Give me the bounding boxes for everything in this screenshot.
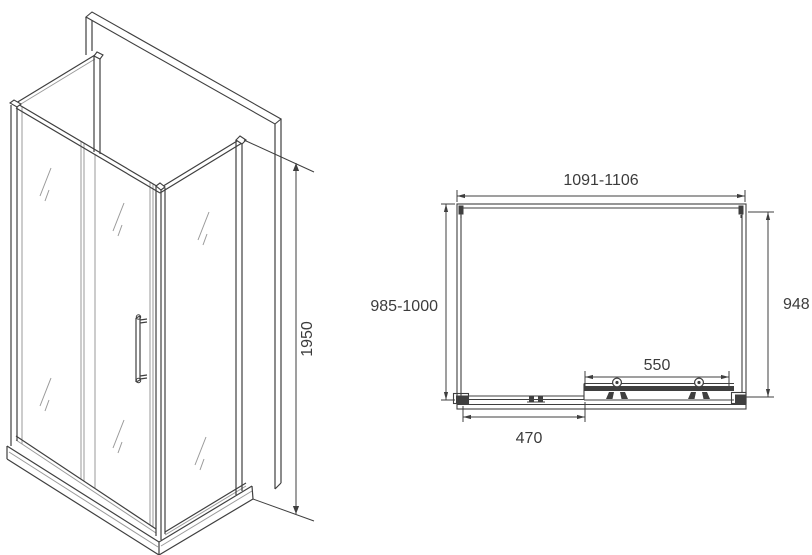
bottom-left-bracket [456, 396, 468, 404]
right-top-rail [160, 138, 242, 193]
near-corner-post [156, 186, 165, 540]
roller2-foot-left [688, 392, 696, 399]
isometric-caps [10, 12, 281, 190]
arrow [457, 194, 465, 198]
arrow [577, 415, 585, 419]
arrow [585, 375, 593, 379]
inner-frame-lines [457, 208, 746, 405]
panel-clamp-tab-2 [538, 396, 543, 402]
shower-enclosure-drawing: 1950 1091-1106 985-1000 948 550 470 [0, 0, 812, 555]
plan-solid-parts [456, 206, 746, 404]
arrow [444, 392, 448, 400]
roller2-axle [697, 381, 700, 384]
rear-post-cap [94, 52, 103, 59]
sliding-door-bar [584, 386, 734, 391]
plan-view [454, 204, 747, 409]
arrow [721, 375, 729, 379]
left-panel-top-edge [16, 55, 95, 103]
fixed-panel-edge [468, 396, 584, 400]
glass-reflection-marks [40, 168, 209, 470]
technical-drawing-sheet: 1950 1091-1106 985-1000 948 550 470 [0, 0, 812, 555]
glass-bottom-inner-edges [16, 440, 246, 535]
isometric-glass-lines [9, 59, 252, 547]
width-dim-lines [457, 190, 745, 202]
bottom-right-bracket [735, 395, 746, 404]
roller2-foot-right [702, 392, 710, 399]
dimension-labels: 1950 1091-1106 985-1000 948 550 470 [299, 172, 810, 447]
right-depth-dimension-label: 948 [783, 296, 810, 313]
arrow [444, 204, 448, 212]
arrow [293, 506, 299, 514]
arrow [766, 389, 770, 397]
near-post-cap [156, 183, 165, 190]
arrow [293, 163, 299, 171]
depth-dim-lines [441, 204, 455, 400]
depth-dimension-label: 985-1000 [370, 298, 438, 315]
roller1-foot-right [620, 392, 628, 399]
isometric-view [7, 12, 281, 555]
wall-profile-top-left [459, 206, 464, 215]
wall-profile-top-right [739, 206, 744, 215]
height-dimension-label: 1950 [299, 321, 316, 357]
arrow [766, 212, 770, 220]
roller1-axle [615, 381, 618, 384]
door-width-dimension-label: 550 [644, 357, 671, 374]
right-corner-post [236, 140, 242, 495]
wall-profile-ticks [461, 215, 741, 218]
roller1-foot-left [606, 392, 614, 399]
front-top-rail [16, 103, 160, 193]
back-wall-top-face [86, 12, 281, 124]
door-handle [136, 316, 147, 382]
door-divider [81, 141, 84, 481]
width-dimension-label: 1091-1106 [563, 172, 638, 189]
side-offset-dimension-label: 470 [516, 430, 543, 447]
arrow [463, 415, 471, 419]
dimension-arrows [293, 163, 770, 514]
door-rollers [613, 378, 704, 387]
arrow [737, 194, 745, 198]
plan-frame-lines [454, 204, 747, 409]
tray-outline [457, 204, 746, 409]
dimension-lines [244, 140, 774, 521]
tray-rim-lines [9, 452, 252, 547]
left-front-post [11, 105, 17, 446]
back-wall-edges [86, 12, 281, 489]
rear-corner-post [94, 56, 100, 154]
isometric-frame-lines [7, 12, 281, 555]
glass-bottom-edges [16, 436, 246, 532]
door-right-edge [150, 182, 153, 527]
panel-clamp-tab-1 [529, 396, 534, 402]
left-panel-top-inner-edge [16, 59, 95, 107]
